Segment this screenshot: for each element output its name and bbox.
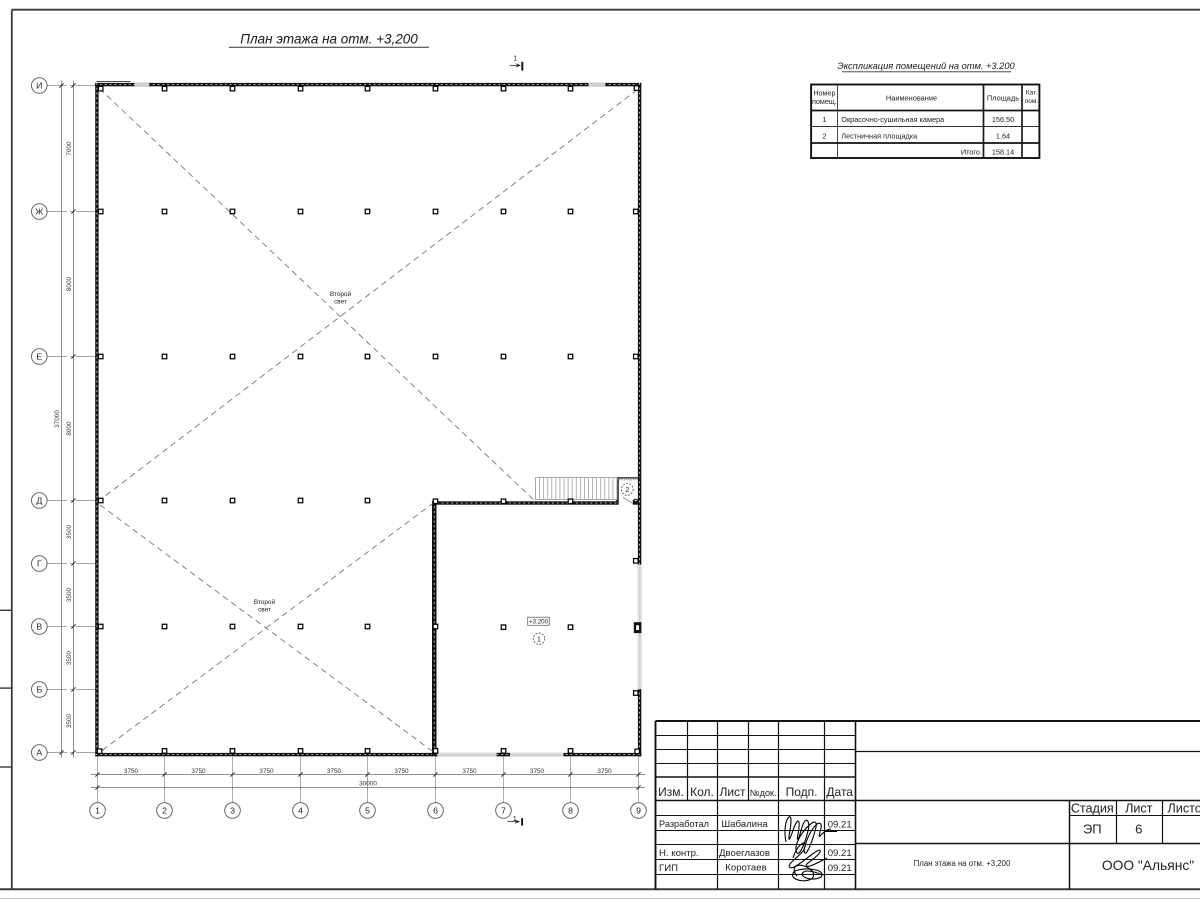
svg-text:Двоеглазов: Двоеглазов (719, 848, 770, 859)
svg-text:ЭП: ЭП (1083, 822, 1102, 837)
svg-text:3750: 3750 (259, 768, 274, 775)
svg-text:9: 9 (636, 806, 641, 816)
svg-text:№док.: №док. (750, 788, 777, 798)
svg-text:1: 1 (513, 814, 517, 823)
svg-text:09.21: 09.21 (828, 863, 852, 874)
svg-text:План этажа на отм. +3,200: План этажа на отм. +3,200 (240, 32, 418, 47)
svg-text:помещ.: помещ. (812, 97, 837, 106)
svg-text:3750: 3750 (327, 768, 342, 775)
svg-text:4: 4 (298, 806, 303, 816)
svg-text:3: 3 (230, 806, 235, 816)
svg-text:Г: Г (37, 559, 42, 569)
svg-text:3500: 3500 (66, 587, 73, 602)
svg-text:Кол.: Кол. (690, 785, 714, 799)
svg-text:8000: 8000 (66, 276, 73, 291)
svg-text:1: 1 (95, 806, 100, 816)
svg-text:158.14: 158.14 (992, 148, 1014, 157)
svg-text:3750: 3750 (394, 768, 409, 775)
svg-text:7: 7 (501, 806, 506, 816)
svg-text:Изм.: Изм. (658, 785, 684, 799)
svg-text:Номер: Номер (813, 88, 835, 97)
svg-text:Лист: Лист (1125, 801, 1153, 815)
svg-text:Второй: Второй (330, 290, 352, 298)
svg-text:свет: свет (334, 298, 347, 305)
svg-text:Е: Е (36, 352, 42, 362)
svg-text:2: 2 (162, 806, 167, 816)
svg-text:Ж: Ж (35, 207, 43, 217)
svg-text:5: 5 (365, 806, 370, 816)
svg-text:2: 2 (822, 131, 826, 140)
svg-text:свет: свет (258, 606, 271, 613)
svg-text:8000: 8000 (66, 421, 73, 436)
svg-text:3500: 3500 (66, 713, 73, 728)
svg-text:1: 1 (537, 636, 541, 643)
svg-text:3750: 3750 (462, 768, 477, 775)
svg-text:09.21: 09.21 (828, 848, 852, 859)
svg-text:ООО "Альянс": ООО "Альянс" (1102, 858, 1194, 873)
svg-text:Площадь: Площадь (987, 94, 1019, 103)
svg-text:Второй: Второй (254, 598, 276, 606)
svg-text:Окрасочно-сушильная камера: Окрасочно-сушильная камера (841, 115, 945, 124)
svg-text:Итого.: Итого. (961, 148, 982, 157)
svg-text:3500: 3500 (66, 650, 73, 665)
svg-text:Н. контр.: Н. контр. (659, 848, 699, 859)
svg-text:3750: 3750 (124, 768, 139, 775)
svg-text:09.21: 09.21 (828, 820, 852, 831)
svg-text:Коротаев: Коротаев (725, 863, 766, 874)
svg-text:И: И (36, 81, 42, 91)
svg-text:ГИП: ГИП (659, 863, 678, 874)
svg-text:Б: Б (36, 685, 42, 695)
svg-text:+3.200: +3.200 (529, 619, 549, 626)
svg-text:6: 6 (1135, 822, 1142, 837)
svg-text:3750: 3750 (530, 768, 545, 775)
svg-text:1: 1 (513, 53, 517, 62)
svg-text:7000: 7000 (66, 141, 73, 156)
svg-text:пом.: пом. (1025, 98, 1039, 105)
svg-text:Лист: Лист (719, 785, 746, 799)
svg-text:Дата: Дата (826, 785, 853, 799)
svg-text:Подп.: Подп. (786, 785, 818, 799)
svg-text:2: 2 (625, 487, 629, 494)
svg-text:В: В (36, 622, 42, 632)
svg-text:Лестничная площадка: Лестничная площадка (841, 131, 918, 140)
svg-text:8: 8 (568, 806, 573, 816)
svg-text:37000: 37000 (54, 410, 61, 428)
svg-text:156.50: 156.50 (992, 115, 1014, 124)
svg-text:6: 6 (433, 806, 438, 816)
svg-text:30000: 30000 (359, 780, 377, 787)
svg-text:1.64: 1.64 (996, 131, 1010, 140)
svg-text:Наименование: Наименование (886, 94, 937, 103)
svg-text:Экспликация помещений на отм.: Экспликация помещений на отм. +3.200 (837, 61, 1015, 71)
svg-text:1: 1 (822, 115, 826, 124)
svg-text:Кат.: Кат. (1026, 90, 1038, 97)
svg-text:3750: 3750 (191, 768, 206, 775)
svg-text:План этажа на отм. +3,200: План этажа на отм. +3,200 (914, 859, 1011, 868)
svg-text:3500: 3500 (66, 524, 73, 539)
svg-text:3750: 3750 (597, 768, 612, 775)
svg-text:Разработал: Разработал (659, 819, 709, 829)
svg-text:А: А (36, 748, 42, 758)
svg-text:Шабалина: Шабалина (721, 819, 768, 830)
svg-text:Стадия: Стадия (1071, 801, 1114, 815)
svg-text:Д: Д (36, 496, 42, 506)
svg-text:Листов: Листов (1168, 801, 1200, 815)
